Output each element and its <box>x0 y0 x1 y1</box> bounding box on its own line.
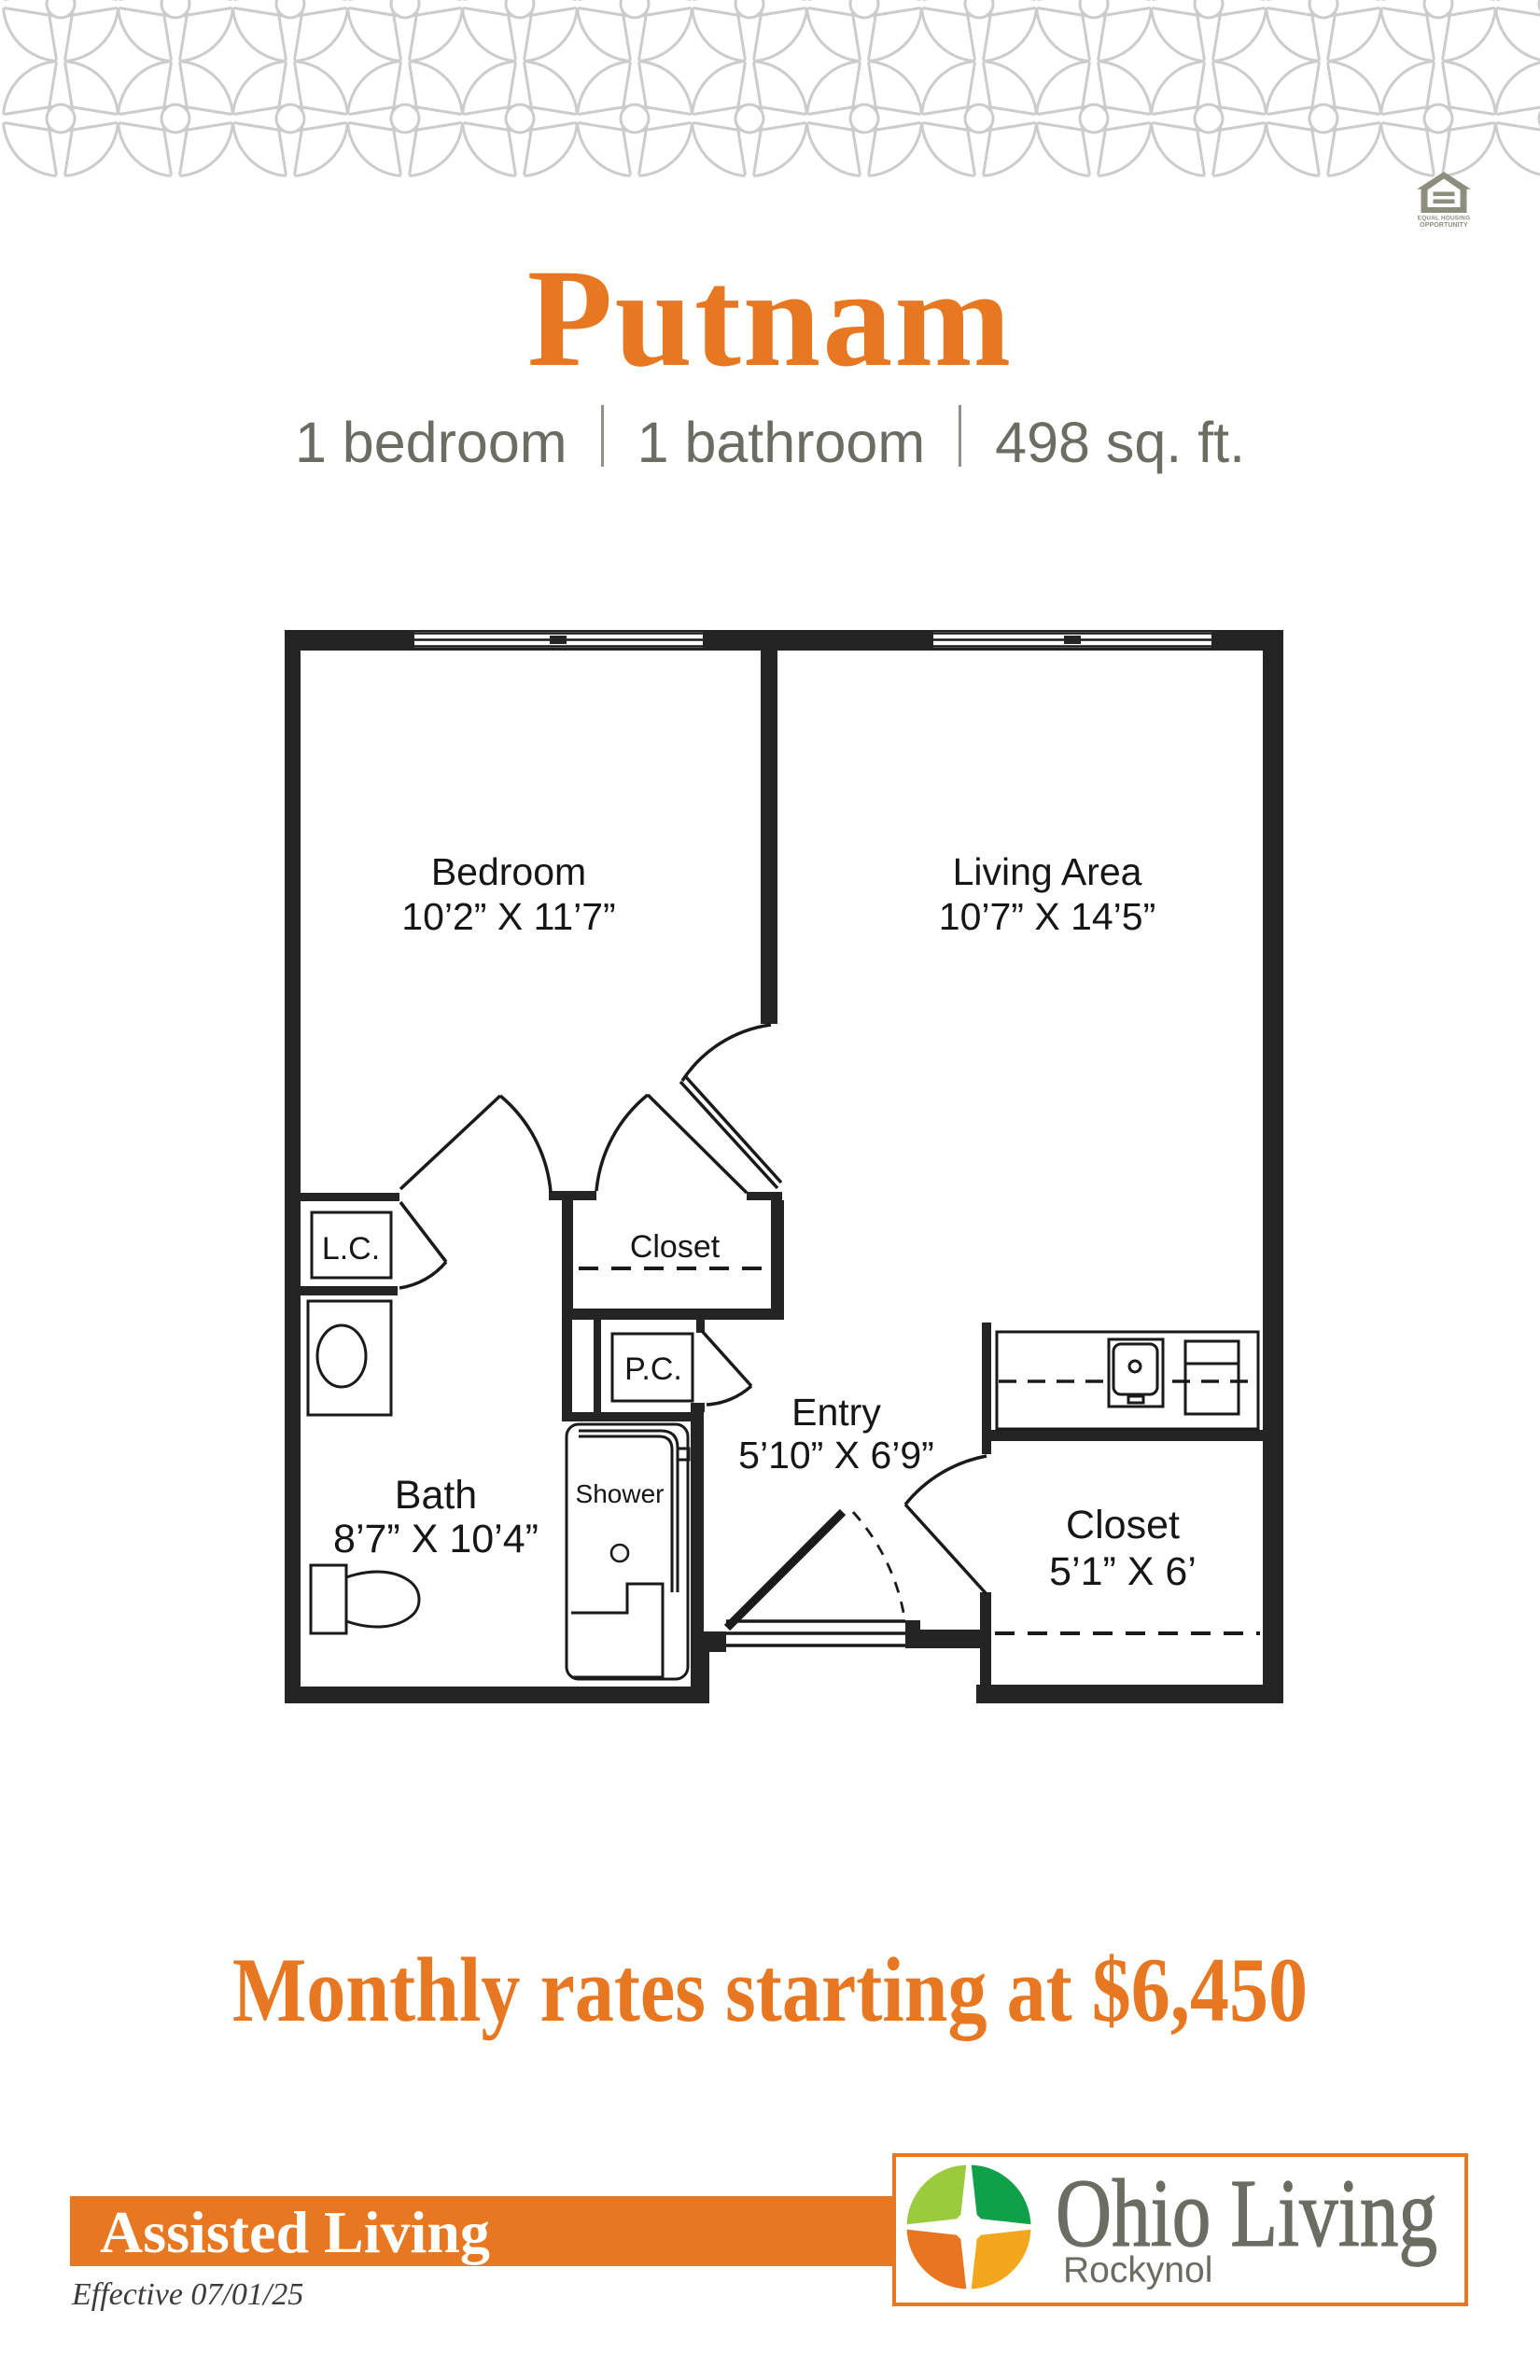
svg-text:10’7” X 14’5”: 10’7” X 14’5” <box>939 895 1155 938</box>
svg-text:OPPORTUNITY: OPPORTUNITY <box>1420 222 1468 229</box>
svg-text:L.C.: L.C. <box>322 1231 380 1267</box>
svg-text:8’7” X 10’4”: 8’7” X 10’4” <box>333 1517 539 1561</box>
svg-text:EQUAL HOUSING: EQUAL HOUSING <box>1418 216 1470 222</box>
svg-text:Closet: Closet <box>630 1229 721 1265</box>
svg-text:P.C.: P.C. <box>624 1351 682 1387</box>
svg-text:Entry: Entry <box>791 1391 881 1434</box>
svg-text:Bedroom: Bedroom <box>431 850 586 893</box>
svg-text:5’10” X 6’9”: 5’10” X 6’9” <box>738 1434 934 1477</box>
svg-text:Shower: Shower <box>576 1479 665 1508</box>
svg-text:5’1” X 6’: 5’1” X 6’ <box>1049 1549 1197 1594</box>
svg-text:Bath: Bath <box>395 1473 477 1518</box>
svg-text:10’2” X 11’7”: 10’2” X 11’7” <box>401 895 615 938</box>
svg-text:Living Area: Living Area <box>953 850 1142 893</box>
svg-text:Closet: Closet <box>1066 1503 1180 1547</box>
